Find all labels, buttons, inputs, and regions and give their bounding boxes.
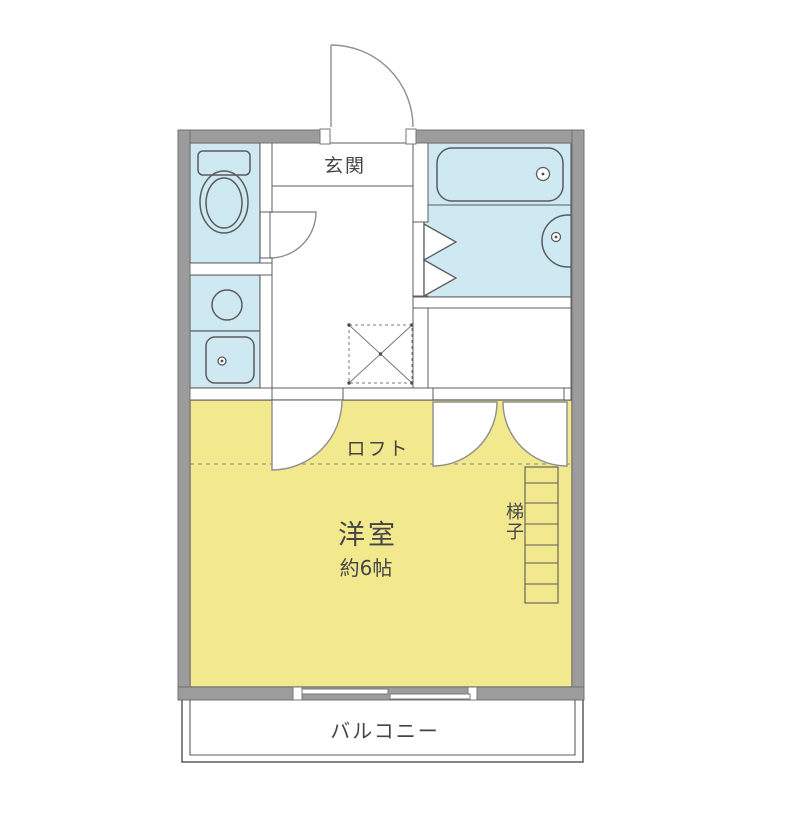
- ladder-label: 梯子: [500, 502, 526, 542]
- hatch-box-icon: [347, 323, 413, 384]
- room-size-label: 約6帖: [340, 552, 393, 581]
- floor-plan-drawing: [0, 0, 800, 821]
- entrance-door-icon: [331, 45, 413, 127]
- washroom: [190, 275, 260, 388]
- room-name-label: 洋室: [338, 513, 398, 552]
- entrance-label: 玄関: [324, 151, 366, 178]
- entrance-jamb-right: [406, 129, 416, 144]
- closet: [428, 308, 571, 388]
- balcony-label: バルコニー: [330, 715, 440, 744]
- floor-plan: 玄関 ロフト 洋室 約6帖 梯子 バルコニー: [0, 0, 800, 821]
- loft-label: ロフト: [346, 434, 409, 461]
- entrance-jamb-left: [320, 129, 330, 144]
